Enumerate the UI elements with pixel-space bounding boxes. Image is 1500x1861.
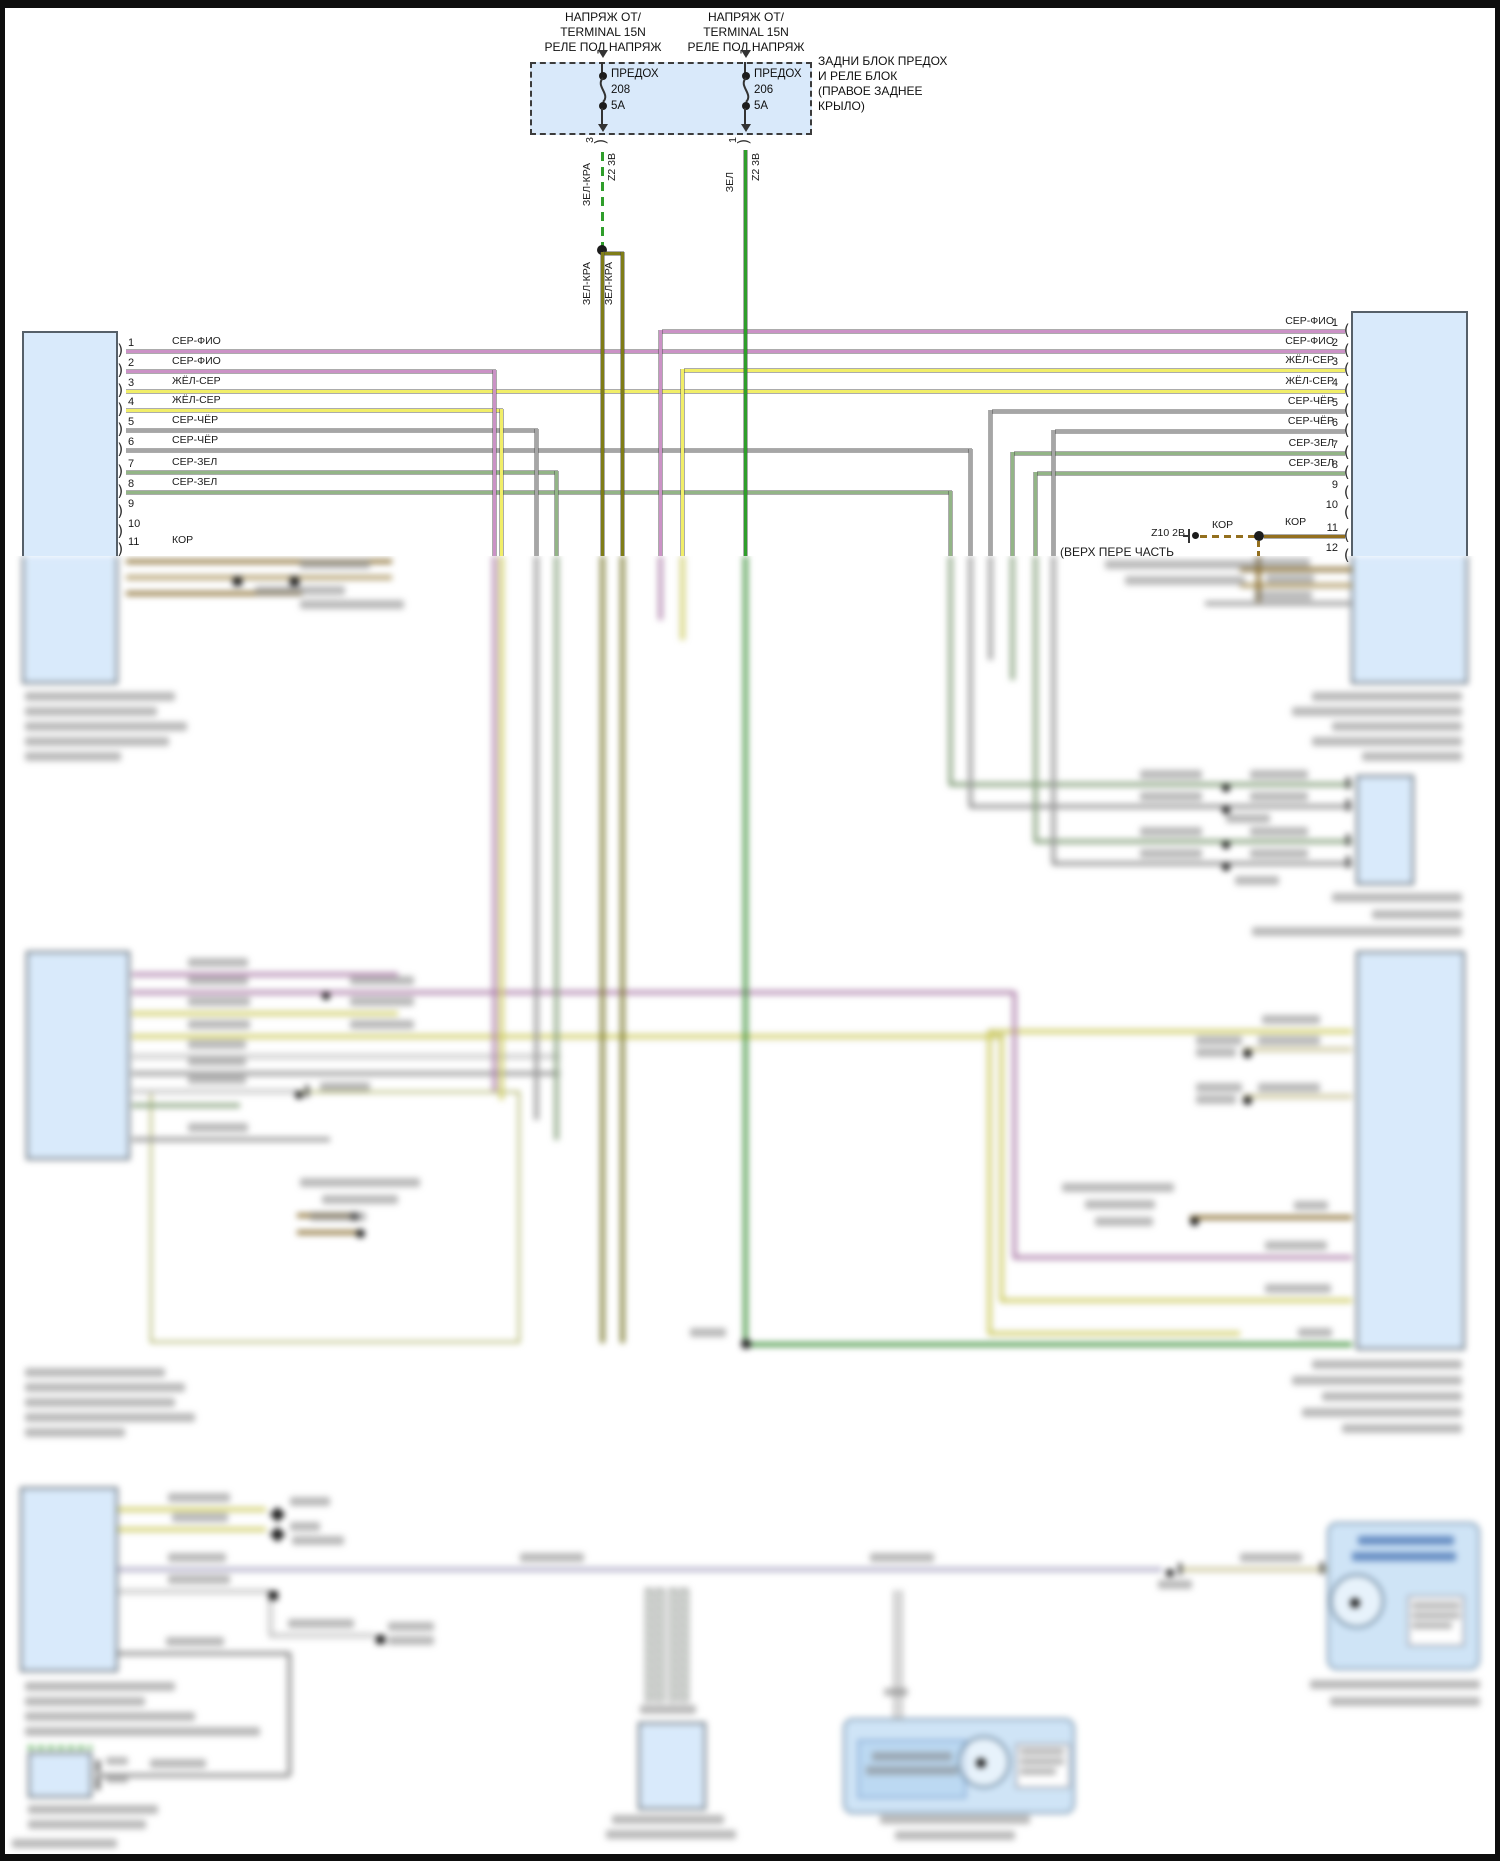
fuse-box-caption-line4: КРЫЛО): [818, 99, 947, 114]
blurred-text: [168, 1493, 230, 1502]
blurred-text: [25, 1712, 195, 1721]
blurred-text: [25, 1697, 145, 1706]
bracket-stub: [305, 1085, 309, 1097]
blurred-text: [1302, 1408, 1462, 1417]
connector-block: [1356, 775, 1414, 885]
left-pin-wire-label: СЕР-ЧЁР: [172, 434, 218, 446]
left-pin-number: 2: [128, 357, 134, 369]
vertical-wire: [989, 556, 992, 660]
blurred-text: [322, 1195, 398, 1204]
horizontal-wire: [118, 1508, 266, 1511]
ground-tap-icon: [1183, 535, 1188, 537]
bracket-stub: [1346, 799, 1350, 811]
blurred-text: [1262, 1015, 1320, 1024]
blurred-text: [188, 997, 250, 1006]
blurred-text: [25, 1398, 175, 1407]
right-pin-wire-label: ЖЁЛ-СЕР: [1260, 375, 1334, 387]
junction-dot: [1243, 1049, 1252, 1058]
horizontal-wire: [126, 429, 538, 432]
junction-dot: [1350, 1598, 1360, 1608]
horizontal-wire: [132, 1104, 240, 1107]
vertical-wire: [659, 556, 662, 620]
blurred-text: [1292, 707, 1462, 716]
blurred-text: [640, 1705, 696, 1714]
right-pin-wire-label: СЕР-ФИО: [1260, 335, 1334, 347]
blurred-text: [1412, 1602, 1460, 1609]
left-pin-bracket-icon: ): [116, 542, 125, 557]
ground-z10-label: Z10 2В: [1110, 527, 1185, 539]
blurred-text: [168, 1575, 230, 1584]
right-pin-wire-label: ЖЁЛ-СЕР: [1260, 354, 1334, 366]
blurred-text: [292, 1536, 344, 1545]
module-title-bar: [1358, 1536, 1454, 1545]
right-pin-bracket-icon: (: [1342, 505, 1351, 520]
blurred-text: [25, 1727, 260, 1736]
left-connector-block: [22, 331, 118, 556]
blurred-text: [1412, 1622, 1452, 1629]
feed-arrow-icon: [741, 50, 751, 58]
fuse-206-rating: 5А: [754, 100, 768, 112]
blurred-text: [1258, 1036, 1320, 1045]
blurred-text: [1140, 770, 1202, 779]
blurred-text: [25, 692, 175, 701]
blurred-text: [1020, 1748, 1064, 1755]
connector-block: [1356, 951, 1465, 1350]
vertical-wire: [1034, 556, 1037, 842]
left-pin-wire-label: СЕР-ФИО: [172, 355, 221, 367]
vertical-wire: [1052, 430, 1055, 556]
circuit-label-z2-3v: Z2 3В: [750, 153, 762, 181]
fuse-lead: [601, 108, 603, 124]
left-pin-bracket-icon: ): [116, 484, 125, 499]
vertical-wire: [949, 491, 952, 556]
blurred-text: [1330, 1697, 1480, 1706]
blurred-text: [612, 1815, 724, 1824]
left-pin-wire-label: КОР: [172, 534, 193, 546]
horizontal-wire: [1055, 430, 1345, 433]
horizontal-wire: [132, 1138, 330, 1141]
blurred-text: [25, 1428, 125, 1437]
connector-block: [20, 1487, 118, 1672]
horizontal-wire: [126, 449, 972, 452]
left-pin-wire-label: ЖЁЛ-СЕР: [172, 375, 221, 387]
fuse-208-name: ПРЕДОХ: [611, 68, 659, 80]
left-pin-bracket-icon: ): [116, 363, 125, 378]
blurred-text: [168, 1553, 226, 1562]
horizontal-wire: [297, 1231, 359, 1234]
left-pin-number: 5: [128, 416, 134, 428]
horizontal-wire: [126, 350, 1345, 353]
right-pin-number: 10: [1316, 499, 1338, 511]
left-pin-number: 6: [128, 436, 134, 448]
junction-dot: [1222, 784, 1230, 792]
blurred-text: [188, 1020, 250, 1029]
vertical-wire: [621, 252, 624, 556]
blurred-text: [1085, 1200, 1155, 1209]
right-pin-number: 12: [1316, 542, 1338, 554]
blurred-text: [25, 1368, 165, 1377]
junction-dot: [1243, 1096, 1252, 1105]
blurred-text: [1312, 1360, 1462, 1369]
horizontal-wire: [1014, 452, 1345, 455]
horizontal-wire: [1190, 1216, 1352, 1219]
feed-right-line2: TERMINAL 15N: [646, 25, 846, 40]
fuse-box-caption-line1: ЗАДНИ БЛОК ПРЕДОХ: [818, 54, 947, 69]
module-title-bar: [1352, 1552, 1456, 1561]
horizontal-wire: [118, 1528, 266, 1531]
blurred-text: [310, 1212, 366, 1221]
blurred-text: [300, 1178, 420, 1187]
wire-label-zel-kra: ЗЕЛ-КРА: [603, 262, 615, 305]
inline-connector-icon: [645, 1588, 654, 1702]
blurred-text: [188, 976, 248, 985]
vertical-wire: [744, 556, 747, 1345]
bracket-stub: [96, 1778, 100, 1790]
connector-block: [28, 1752, 92, 1798]
blurred-text: [25, 1682, 175, 1691]
blurred-text: [166, 1637, 224, 1646]
left-pin-number: 8: [128, 478, 134, 490]
left-pin-bracket-icon: ): [116, 442, 125, 457]
feed-right-line1: НАПРЯЖ ОТ/: [646, 10, 846, 25]
fuse-208-rating: 5А: [611, 100, 625, 112]
ground-tap-icon: [1188, 529, 1190, 543]
blurred-text: [28, 1805, 158, 1814]
blurred-text: [1020, 1768, 1056, 1775]
blurred-text: [1322, 1392, 1462, 1401]
blurred-text: [188, 1040, 246, 1049]
wire-zel-kra-dashed: [601, 152, 604, 250]
fuse-output-arrow-icon: [598, 124, 608, 132]
horizontal-wire: [126, 491, 952, 494]
vertical-wire: [681, 556, 684, 640]
fuse-206-pin-number: 1: [727, 137, 739, 143]
wire-label-zel-kra: ЗЕЛ-КРА: [581, 163, 593, 206]
blurred-region: [0, 0, 1500, 1861]
blurred-text: [1125, 576, 1245, 585]
blurred-text: [1020, 1758, 1064, 1765]
vertical-wire: [1034, 472, 1037, 556]
blurred-text: [1252, 927, 1462, 936]
blurred-text: [1265, 1241, 1327, 1250]
junction-square: [233, 577, 242, 586]
blurred-text: [1196, 1036, 1242, 1045]
blurred-text: [25, 1383, 185, 1392]
wiring-diagram-page: НАПРЯЖ ОТ/ TERMINAL 15N РЕЛЕ ПОД НАПРЯЖ …: [0, 0, 1500, 1861]
left-pin-bracket-icon: ): [116, 422, 125, 437]
blurred-text: [300, 560, 370, 569]
connector-block: [26, 951, 130, 1160]
blurred-text: [870, 1553, 934, 1562]
blurred-text: [1140, 849, 1202, 858]
left-pin-number: 1: [128, 337, 134, 349]
left-pin-wire-label: СЕР-ФИО: [172, 335, 221, 347]
blurred-text: [350, 1020, 414, 1029]
vertical-wire: [1011, 556, 1014, 680]
blurred-text: [884, 1688, 908, 1696]
blurred-text: [1298, 1328, 1332, 1337]
blurred-text: [255, 586, 345, 595]
left-pin-wire-label: ЖЁЛ-СЕР: [172, 394, 221, 406]
right-pin-wire-label: СЕР-ЗЕЛ: [1260, 437, 1334, 449]
double-line: [900, 1590, 902, 1720]
blurred-text: [895, 1831, 1015, 1840]
blurred-text: [150, 1759, 206, 1768]
blurred-text: [12, 1839, 117, 1848]
vertical-wire: [535, 556, 538, 1120]
horizontal-wire: [1034, 840, 1352, 843]
dashed-wire: [28, 1746, 92, 1749]
blurred-text: [350, 997, 414, 1006]
vertical-wire: [988, 1030, 991, 1334]
blurred-text: [1250, 827, 1308, 836]
right-pin-number: 11: [1316, 522, 1338, 534]
blurred-text: [1332, 893, 1462, 902]
junction-dot: [1222, 841, 1230, 849]
blurred-text: [1312, 692, 1462, 701]
blurred-text: [288, 1619, 354, 1628]
feed-arrow-icon: [598, 50, 608, 58]
right-pin-wire-label: СЕР-ФИО: [1260, 315, 1334, 327]
blurred-text: [866, 1766, 958, 1775]
left-pin-bracket-icon: ): [116, 402, 125, 417]
blurred-text: [1062, 1183, 1174, 1192]
blurred-text: [25, 1413, 195, 1422]
junction-dot: [1222, 863, 1230, 871]
junction-dot: [1166, 1569, 1174, 1577]
junction-dot: [1222, 806, 1230, 814]
left-pin-number: 9: [128, 498, 134, 510]
bracket-stub: [1346, 777, 1350, 789]
vertical-wire: [744, 150, 747, 556]
blurred-text: [290, 1522, 320, 1531]
blurred-text: [1140, 827, 1202, 836]
blurred-text: [1196, 1095, 1236, 1104]
blurred-text: [1226, 814, 1270, 823]
horizontal-wire: [118, 1590, 269, 1593]
double-line: [894, 1590, 896, 1720]
vertical-wire: [659, 330, 662, 556]
connector-block: [22, 556, 118, 684]
blurred-text: [300, 600, 404, 609]
horizontal-wire: [269, 1634, 374, 1637]
blurred-text: [1266, 574, 1314, 583]
junction-dot: [322, 992, 330, 1000]
horizontal-wire: [118, 1652, 289, 1655]
horizontal-wire: [126, 390, 1345, 393]
blurred-text: [1332, 722, 1462, 731]
vertical-wire: [601, 556, 604, 1343]
right-pin-wire-label: СЕР-ЗЕЛ: [1260, 457, 1334, 469]
left-pin-bracket-icon: ): [116, 343, 125, 358]
blurred-text: [188, 1123, 248, 1132]
fuse-206-number: 206: [754, 84, 773, 96]
horizontal-wire: [132, 1035, 1004, 1038]
blurred-text: [1294, 1201, 1328, 1210]
bracket-stub: [1178, 1563, 1182, 1575]
horizontal-wire: [1037, 472, 1345, 475]
vertical-wire: [288, 1652, 291, 1776]
vertical-wire: [493, 370, 496, 556]
feed-label-right: НАПРЯЖ ОТ/ TERMINAL 15N РЕЛЕ ПОД НАПРЯЖ: [646, 10, 846, 55]
junction-dot: [1254, 531, 1264, 541]
inline-connector-icon: [656, 1588, 665, 1702]
left-pin-wire-label: СЕР-ЗЕЛ: [172, 476, 217, 488]
left-pin-bracket-icon: ): [116, 464, 125, 479]
blurred-text: [290, 1497, 330, 1506]
right-connector-block: [1351, 311, 1468, 556]
horizontal-wire: [126, 409, 503, 412]
blurred-text: [1196, 1048, 1236, 1057]
blurred-text: [1412, 1612, 1460, 1619]
blurred-text: [1292, 1376, 1462, 1385]
blurred-text: [1310, 1680, 1480, 1689]
junction-dot: [1190, 1217, 1199, 1226]
vertical-wire: [500, 556, 503, 1100]
wire-label-kor: КОР: [1285, 516, 1306, 528]
vertical-wire: [493, 556, 496, 1091]
blurred-text: [872, 1752, 952, 1761]
fuse-box-caption-line2: И РЕЛЕ БЛОК: [818, 69, 947, 84]
horizontal-wire: [118, 1568, 1162, 1571]
fuse-206-name: ПРЕДОХ: [754, 68, 802, 80]
blurred-text: [28, 1820, 146, 1829]
diamond-connector-icon: [270, 1527, 286, 1543]
vertical-wire: [1013, 991, 1016, 1258]
blurred-text: [106, 1775, 128, 1783]
wire-label-kor: КОР: [1212, 519, 1233, 531]
vertical-wire: [555, 471, 558, 556]
horizontal-wire: [949, 783, 1352, 786]
blurred-text: [1342, 1424, 1462, 1433]
ground-tap-dot: [1192, 532, 1199, 539]
junction-dot: [976, 1758, 986, 1768]
wire-kor-dashed: [1200, 535, 1256, 538]
vertical-wire: [1011, 452, 1014, 556]
right-pin-number: 9: [1316, 479, 1338, 491]
blurred-text: [1312, 737, 1462, 746]
vertical-wire: [1000, 1035, 1003, 1301]
blurred-text: [350, 976, 414, 985]
bracket-stub: [1346, 834, 1350, 846]
left-pin-wire-label: СЕР-ЗЕЛ: [172, 456, 217, 468]
horizontal-wire: [969, 805, 1352, 808]
blurred-text: [320, 1082, 370, 1091]
circuit-label-z2-3v: Z2 3В: [606, 153, 618, 181]
inline-connector-icon: [680, 1588, 689, 1702]
left-pin-wire-label: СЕР-ЧЁР: [172, 414, 218, 426]
horizontal-wire: [1243, 1048, 1352, 1051]
horizontal-wire: [1180, 1568, 1327, 1571]
blurred-text: [388, 1636, 434, 1645]
blurred-text: [1250, 792, 1308, 801]
fuse-208-pin-number: 3: [584, 137, 596, 143]
diamond-connector-icon: [270, 1507, 286, 1523]
blurred-text: [1250, 770, 1308, 779]
blurred-text: [1196, 1083, 1242, 1092]
vertical-wire: [969, 449, 972, 556]
horizontal-wire: [132, 991, 1013, 994]
blurred-text: [1250, 849, 1308, 858]
vertical-wire: [601, 252, 604, 556]
inline-connector-icon: [669, 1588, 678, 1702]
fuse-output-arrow-icon: [741, 124, 751, 132]
vertical-wire: [1052, 556, 1055, 864]
blurred-text: [1372, 910, 1462, 919]
horizontal-wire: [1205, 602, 1352, 605]
junction-square: [290, 577, 299, 586]
vertical-wire: [535, 429, 538, 556]
junction-dot: [295, 1091, 303, 1099]
connector-block: [1351, 556, 1468, 684]
blurred-text: [1095, 1217, 1153, 1226]
left-pin-bracket-icon: ): [116, 504, 125, 519]
horizontal-wire: [662, 330, 1345, 333]
horizontal-wire: [684, 369, 1345, 372]
bracket-stub: [96, 1760, 100, 1772]
blurred-text: [25, 707, 157, 716]
wire-label-zel: ЗЕЛ: [724, 172, 736, 192]
horizontal-wire: [1052, 862, 1352, 865]
vertical-wire: [621, 556, 624, 1343]
junction-dot: [356, 1229, 365, 1238]
blurred-text: [188, 1057, 246, 1066]
blurred-text: [188, 958, 248, 967]
fuse-208-number: 208: [611, 84, 630, 96]
blurred-text: [1105, 560, 1255, 569]
connector-block: [638, 1722, 706, 1810]
blurred-text: [1258, 1083, 1320, 1092]
wire-label-zel-kra: ЗЕЛ-КРА: [581, 262, 593, 305]
fuse-box-caption: ЗАДНИ БЛОК ПРЕДОХ И РЕЛЕ БЛОК (ПРАВОЕ ЗА…: [818, 54, 947, 114]
horizontal-wire: [1013, 1256, 1352, 1259]
horizontal-wire: [1000, 1299, 1352, 1302]
blurred-text: [1254, 591, 1312, 600]
left-pin-number: 10: [128, 518, 140, 530]
blurred-text: [1158, 1580, 1192, 1589]
blurred-text: [1240, 1553, 1302, 1562]
blurred-text: [388, 1622, 434, 1631]
right-pin-wire-label: СЕР-ЧЁР: [1260, 415, 1334, 427]
horizontal-wire: [988, 1030, 1352, 1033]
blurred-text: [25, 722, 187, 731]
vertical-wire: [969, 556, 972, 807]
bracket-stub: [1346, 856, 1350, 868]
blurred-text: [188, 1075, 246, 1084]
blurred-text: [1254, 558, 1310, 567]
blurred-text: [1140, 792, 1202, 801]
horizontal-wire: [132, 1012, 398, 1015]
horizontal-wire: [745, 1343, 1352, 1346]
left-pin-number: 4: [128, 396, 134, 408]
right-pin-wire-label: СЕР-ЧЁР: [1260, 395, 1334, 407]
left-pin-number: 11: [128, 536, 139, 548]
blurred-text: [1362, 752, 1462, 761]
junction-square: [376, 1635, 385, 1644]
horizontal-wire: [1264, 535, 1345, 538]
horizontal-wire: [988, 1332, 1240, 1335]
blurred-text: [606, 1830, 736, 1839]
junction-dot: [741, 1339, 751, 1349]
blurred-text: [880, 1815, 1030, 1824]
horizontal-wire: [992, 410, 1345, 413]
bracket-stub: [1320, 1562, 1324, 1574]
left-pin-bracket-icon: ): [116, 383, 125, 398]
blurred-text: [172, 1513, 228, 1522]
wire-kor-dashed-down: [1257, 541, 1260, 556]
horizontal-wire: [126, 576, 392, 579]
blurred-text: [520, 1553, 584, 1562]
